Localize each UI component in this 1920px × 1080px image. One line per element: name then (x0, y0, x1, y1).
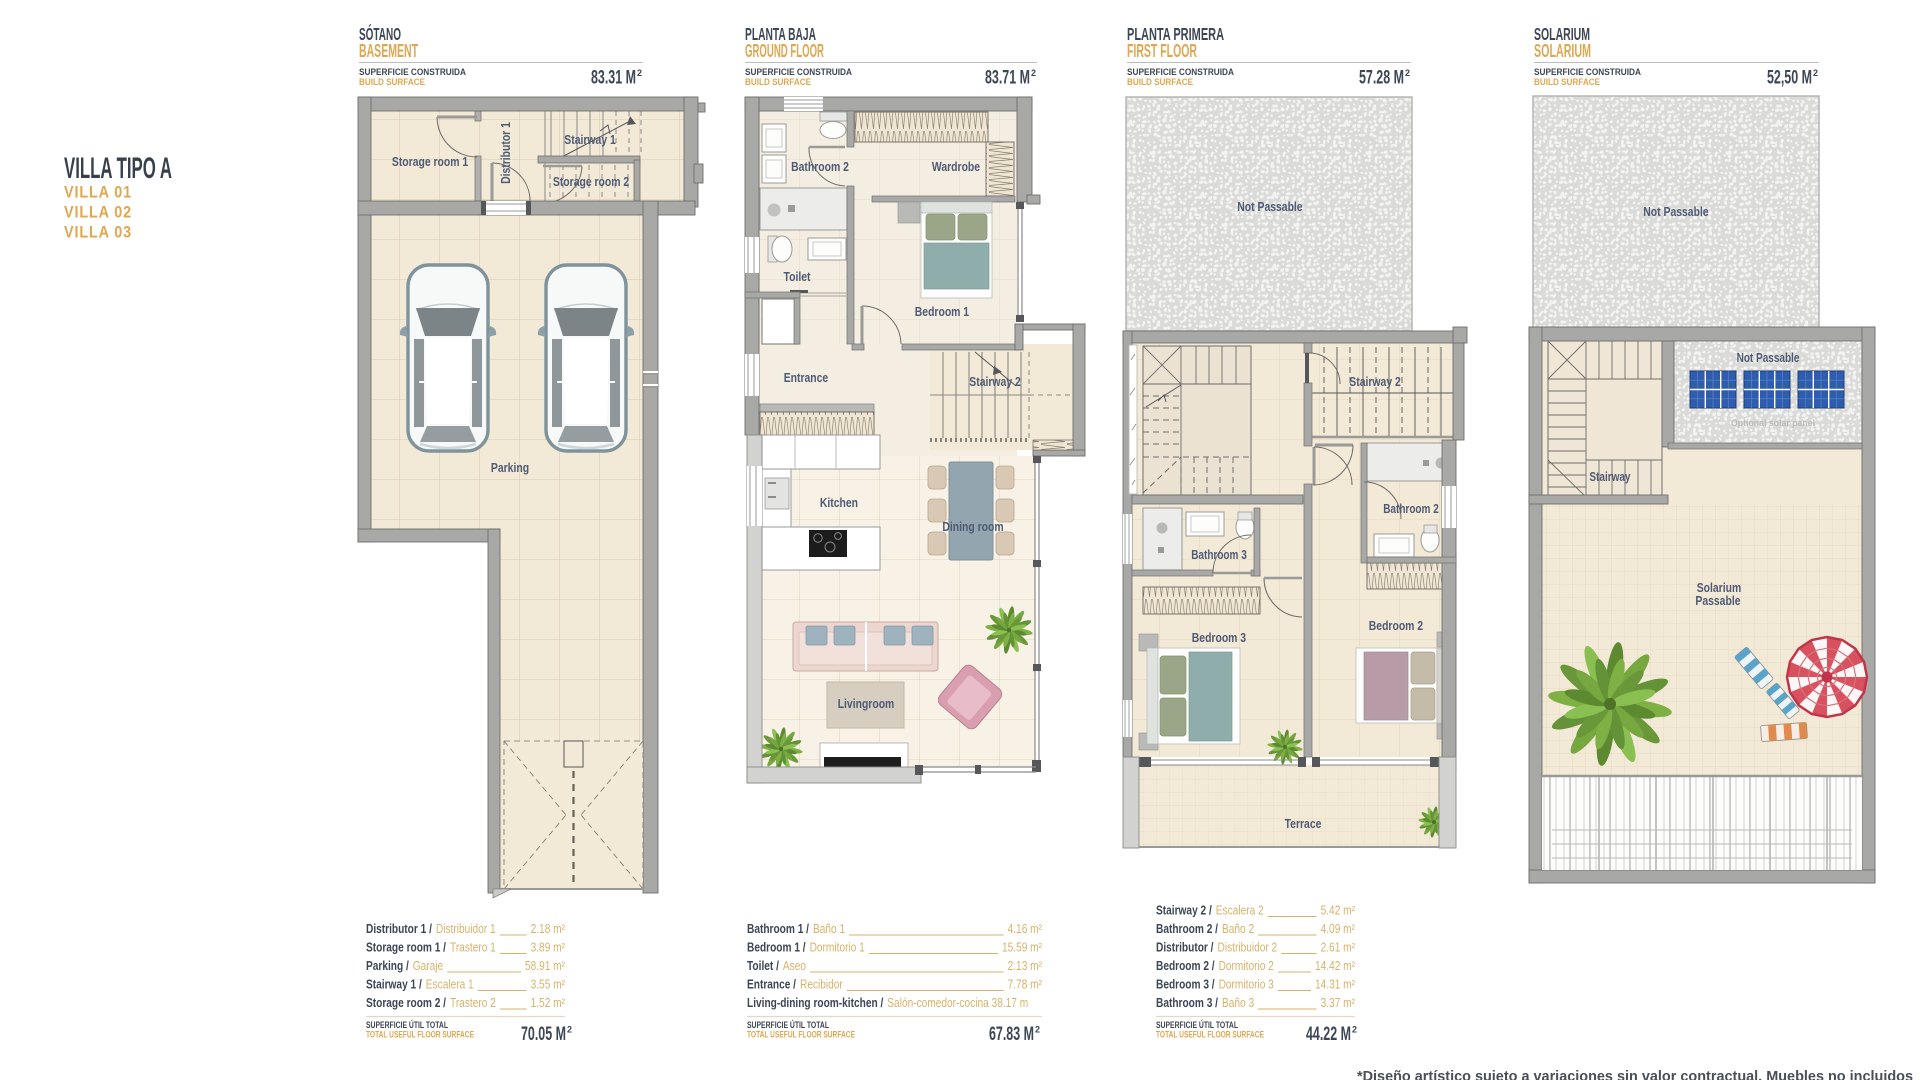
svg-text:VILLA 03: VILLA 03 (64, 224, 132, 242)
svg-text:Wardrobe: Wardrobe (932, 159, 980, 174)
svg-text:Dining room: Dining room (942, 519, 1003, 534)
svg-text:VILLA 01: VILLA 01 (64, 184, 132, 202)
svg-text:Distributor 1: Distributor 1 (498, 122, 513, 184)
svg-text:Living-dining room-kitchen /: Living-dining room-kitchen / (747, 995, 884, 1010)
svg-text:Distributor 1 /: Distributor 1 / (366, 921, 432, 936)
svg-text:VILLA TIPO A: VILLA TIPO A (64, 152, 172, 185)
svg-text:Dormitorio 1: Dormitorio 1 (810, 940, 865, 955)
svg-text:BUILD SURFACE: BUILD SURFACE (745, 77, 811, 87)
svg-text:83.71 M: 83.71 M (985, 68, 1030, 89)
svg-text:2: 2 (1035, 1025, 1040, 1035)
svg-text:Not Passable: Not Passable (1737, 351, 1800, 365)
svg-text:Parking /: Parking / (366, 958, 409, 973)
svg-text:Storage room 2: Storage room 2 (553, 174, 629, 189)
svg-text:Entrance /: Entrance / (747, 977, 796, 992)
svg-text:SUPERFICIE CONSTRUIDA: SUPERFICIE CONSTRUIDA (1534, 67, 1642, 77)
svg-text:1.52 m²: 1.52 m² (531, 995, 566, 1010)
svg-text:Salón-comedor-cocina 38.17 m: Salón-comedor-cocina 38.17 m (887, 995, 1028, 1010)
svg-text:2.13 m²: 2.13 m² (1008, 958, 1043, 973)
svg-text:Bathroom 3 /: Bathroom 3 / (1156, 995, 1218, 1010)
svg-text:Not Passable: Not Passable (1643, 204, 1708, 219)
svg-text:Distribuidor 2: Distribuidor 2 (1218, 940, 1278, 955)
svg-text:Bedroom 1: Bedroom 1 (915, 304, 969, 319)
svg-text:SUPERFICIE CONSTRUIDA: SUPERFICIE CONSTRUIDA (1127, 67, 1235, 77)
svg-text:2: 2 (1405, 68, 1410, 78)
svg-text:2: 2 (567, 1025, 572, 1035)
svg-text:FIRST FLOOR: FIRST FLOOR (1127, 41, 1197, 61)
svg-text:BUILD SURFACE: BUILD SURFACE (1534, 77, 1600, 87)
svg-text:SUPERFICIE ÚTIL TOTAL: SUPERFICIE ÚTIL TOTAL (366, 1019, 448, 1030)
svg-text:Bedroom 2 /: Bedroom 2 / (1156, 958, 1215, 973)
svg-text:2: 2 (637, 68, 642, 78)
svg-text:Dormitorio 3: Dormitorio 3 (1219, 977, 1274, 992)
svg-text:Toilet /: Toilet / (747, 958, 779, 973)
svg-text:Bathroom 2 /: Bathroom 2 / (1156, 921, 1218, 936)
svg-text:Bedroom 1 /: Bedroom 1 / (747, 940, 806, 955)
svg-text:Bathroom 2: Bathroom 2 (791, 159, 849, 174)
svg-text:Garaje: Garaje (413, 958, 443, 973)
svg-text:44.22 M: 44.22 M (1306, 1024, 1351, 1045)
svg-text:Aseo: Aseo (783, 958, 806, 973)
svg-text:2.61 m²: 2.61 m² (1321, 940, 1356, 955)
svg-text:Bathroom 3: Bathroom 3 (1191, 548, 1247, 562)
svg-text:Optional solar panel: Optional solar panel (1731, 418, 1815, 429)
svg-text:Terrace: Terrace (1285, 816, 1322, 831)
svg-text:Passable: Passable (1695, 593, 1740, 608)
svg-text:Trastero 1: Trastero 1 (450, 940, 496, 955)
svg-text:4.16 m²: 4.16 m² (1008, 921, 1043, 936)
svg-text:2: 2 (1031, 68, 1036, 78)
svg-text:Escalera 2: Escalera 2 (1216, 903, 1264, 918)
svg-text:2: 2 (1813, 68, 1818, 78)
svg-text:5.42 m²: 5.42 m² (1321, 903, 1356, 918)
svg-text:Stairway: Stairway (1589, 470, 1630, 484)
svg-text:SOLARIUM: SOLARIUM (1534, 41, 1591, 61)
svg-text:VILLA 02: VILLA 02 (64, 204, 132, 222)
svg-text:Bedroom 3 /: Bedroom 3 / (1156, 977, 1215, 992)
svg-text:3.37 m²: 3.37 m² (1321, 995, 1356, 1010)
svg-text:SUPERFICIE CONSTRUIDA: SUPERFICIE CONSTRUIDA (359, 67, 467, 77)
svg-text:Stairway 2 /: Stairway 2 / (1156, 903, 1212, 918)
svg-text:Baño 3: Baño 3 (1222, 995, 1254, 1010)
svg-text:Storage room 2 /: Storage room 2 / (366, 995, 446, 1010)
svg-text:Storage room 1 /: Storage room 1 / (366, 940, 446, 955)
svg-text:Stairway 2: Stairway 2 (1349, 374, 1401, 389)
svg-text:2.18 m²: 2.18 m² (531, 921, 566, 936)
svg-text:Bathroom 1 /: Bathroom 1 / (747, 921, 809, 936)
svg-text:Stairway 1: Stairway 1 (564, 132, 616, 147)
svg-text:Parking: Parking (491, 460, 529, 475)
svg-text:83.31 M: 83.31 M (591, 68, 636, 89)
svg-text:Bathroom 2: Bathroom 2 (1383, 502, 1439, 516)
svg-text:GROUND FLOOR: GROUND FLOOR (745, 41, 824, 61)
svg-text:Stairway 1 /: Stairway 1 / (366, 977, 422, 992)
svg-text:BASEMENT: BASEMENT (359, 41, 418, 61)
svg-text:SUPERFICIE CONSTRUIDA: SUPERFICIE CONSTRUIDA (745, 67, 853, 77)
svg-text:SUPERFICIE ÚTIL TOTAL: SUPERFICIE ÚTIL TOTAL (1156, 1019, 1238, 1030)
svg-text:70.05 M: 70.05 M (521, 1024, 566, 1045)
svg-text:TOTAL USEFUL FLOOR SURFACE: TOTAL USEFUL FLOOR SURFACE (747, 1030, 855, 1040)
svg-text:Baño 1: Baño 1 (813, 921, 845, 936)
svg-text:67.83 M: 67.83 M (989, 1024, 1034, 1045)
svg-text:Dormitorio 2: Dormitorio 2 (1219, 958, 1274, 973)
svg-text:14.31 m²: 14.31 m² (1315, 977, 1356, 992)
svg-text:BUILD SURFACE: BUILD SURFACE (1127, 77, 1193, 87)
svg-text:Stairway 2: Stairway 2 (969, 374, 1021, 389)
svg-text:57.28 M: 57.28 M (1359, 68, 1404, 89)
svg-text:3.55 m²: 3.55 m² (531, 977, 566, 992)
svg-text:14.42 m²: 14.42 m² (1315, 958, 1356, 973)
svg-text:Distributor /: Distributor / (1156, 940, 1214, 955)
svg-text:52,50 M: 52,50 M (1767, 68, 1812, 89)
svg-text:Kitchen: Kitchen (820, 495, 858, 510)
svg-text:Toilet: Toilet (784, 269, 812, 284)
svg-text:Entrance: Entrance (784, 370, 829, 385)
svg-text:Distribuidor 1: Distribuidor 1 (436, 921, 496, 936)
svg-text:58.91 m²: 58.91 m² (525, 958, 566, 973)
svg-text:TOTAL USEFUL FLOOR SURFACE: TOTAL USEFUL FLOOR SURFACE (1156, 1030, 1264, 1040)
svg-text:*Diseño artístico sujeto a var: *Diseño artístico sujeto a variaciones s… (1357, 1069, 1913, 1080)
svg-text:Livingroom: Livingroom (838, 696, 895, 711)
svg-text:Bedroom 2: Bedroom 2 (1369, 618, 1423, 633)
svg-text:SUPERFICIE ÚTIL TOTAL: SUPERFICIE ÚTIL TOTAL (747, 1019, 829, 1030)
svg-text:Storage room 1: Storage room 1 (392, 154, 468, 169)
svg-text:3.89 m²: 3.89 m² (531, 940, 566, 955)
svg-text:Bedroom 3: Bedroom 3 (1192, 630, 1246, 645)
svg-text:4.09 m²: 4.09 m² (1321, 921, 1356, 936)
svg-text:7.78 m²: 7.78 m² (1008, 977, 1043, 992)
svg-text:Not Passable: Not Passable (1237, 199, 1302, 214)
svg-text:TOTAL USEFUL FLOOR SURFACE: TOTAL USEFUL FLOOR SURFACE (366, 1030, 474, 1040)
svg-text:BUILD SURFACE: BUILD SURFACE (359, 77, 425, 87)
svg-text:2: 2 (1352, 1025, 1357, 1035)
svg-text:15.59 m²: 15.59 m² (1002, 940, 1043, 955)
svg-text:Trastero 2: Trastero 2 (450, 995, 496, 1010)
svg-text:Recibidor: Recibidor (800, 977, 843, 992)
svg-text:Baño 2: Baño 2 (1222, 921, 1254, 936)
svg-text:Escalera 1: Escalera 1 (426, 977, 474, 992)
